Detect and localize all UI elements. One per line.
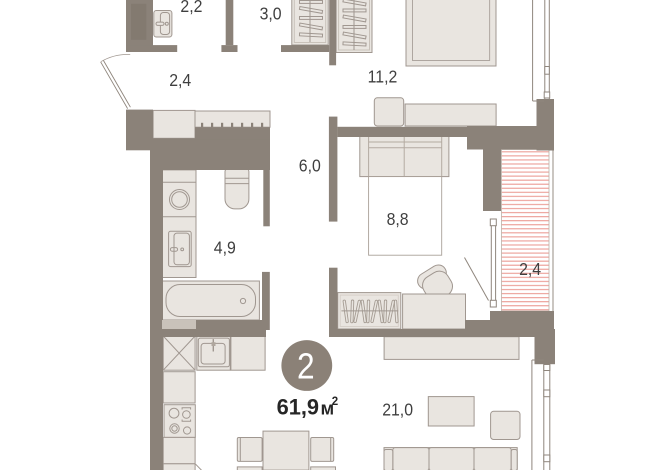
svg-text:2,4: 2,4 bbox=[519, 259, 541, 279]
svg-text:2,4: 2,4 bbox=[169, 70, 191, 90]
svg-text:8,8: 8,8 bbox=[387, 209, 409, 229]
svg-text:21,0: 21,0 bbox=[382, 400, 413, 420]
svg-text:3,0: 3,0 bbox=[260, 4, 282, 24]
svg-text:11,2: 11,2 bbox=[368, 67, 398, 87]
svg-text:2: 2 bbox=[297, 347, 315, 387]
svg-text:61,9: 61,9 bbox=[277, 394, 319, 419]
svg-text:4,9: 4,9 bbox=[214, 237, 236, 257]
svg-text:2: 2 bbox=[332, 396, 338, 408]
svg-text:2,2: 2,2 bbox=[180, 0, 202, 16]
svg-text:6,0: 6,0 bbox=[299, 156, 321, 176]
